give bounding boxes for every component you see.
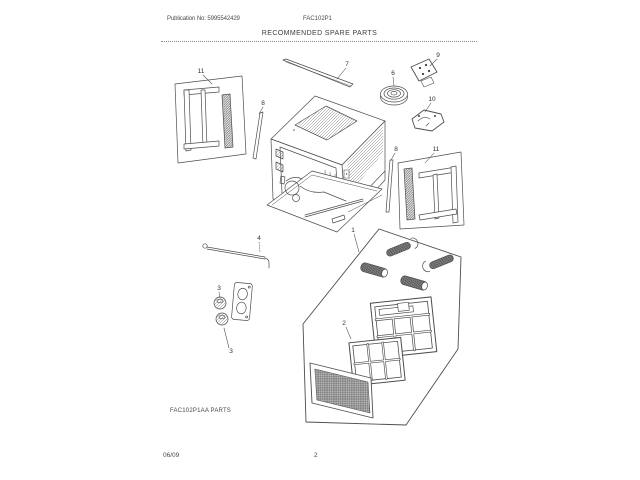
power-cord — [203, 244, 269, 268]
callout-11-left-panel: 11 — [198, 68, 205, 75]
control-panel — [231, 282, 252, 320]
callout-1-front-assembly: 1 — [351, 227, 355, 234]
callout-3-knob-lower: 3 — [229, 348, 233, 355]
callout-2-filter: 2 — [342, 320, 346, 327]
callout-8-right-seal: 8 — [394, 146, 398, 153]
footer-date: 06/09 — [163, 452, 179, 459]
callout-4-cord: 4 — [257, 235, 261, 242]
callout-6-gasket: 6 — [391, 70, 395, 77]
callout-10-bracket: 10 — [428, 96, 436, 103]
window-panel-left — [175, 76, 246, 163]
callout-8-left-seal: 8 — [261, 100, 265, 107]
window-panel-right — [398, 152, 464, 229]
seal-strip-right — [386, 160, 393, 212]
document-page: Publication No: 5995542429 FAC102P1 RECO… — [0, 0, 640, 480]
top-rail-seal — [283, 59, 353, 87]
callout-11-right-panel: 11 — [433, 146, 440, 153]
callout-9-bracket: 9 — [436, 52, 440, 59]
footer-page-number: 2 — [314, 452, 318, 459]
seal-strip-left — [253, 112, 263, 159]
parts-diagram: 11 8 7 6 9 10 8 11 4 3 3 1 2 — [0, 0, 640, 480]
gasket-coil — [381, 86, 408, 105]
control-knob-lower — [216, 313, 228, 325]
callout-7-top-rail: 7 — [345, 61, 349, 68]
front-assembly-panel — [303, 229, 461, 425]
callout-3-knob-upper: 3 — [217, 285, 221, 292]
bracket-lower — [412, 110, 444, 131]
diagram-caption: FAC102P1AA PARTS — [170, 408, 231, 414]
control-knob-upper — [214, 297, 226, 309]
